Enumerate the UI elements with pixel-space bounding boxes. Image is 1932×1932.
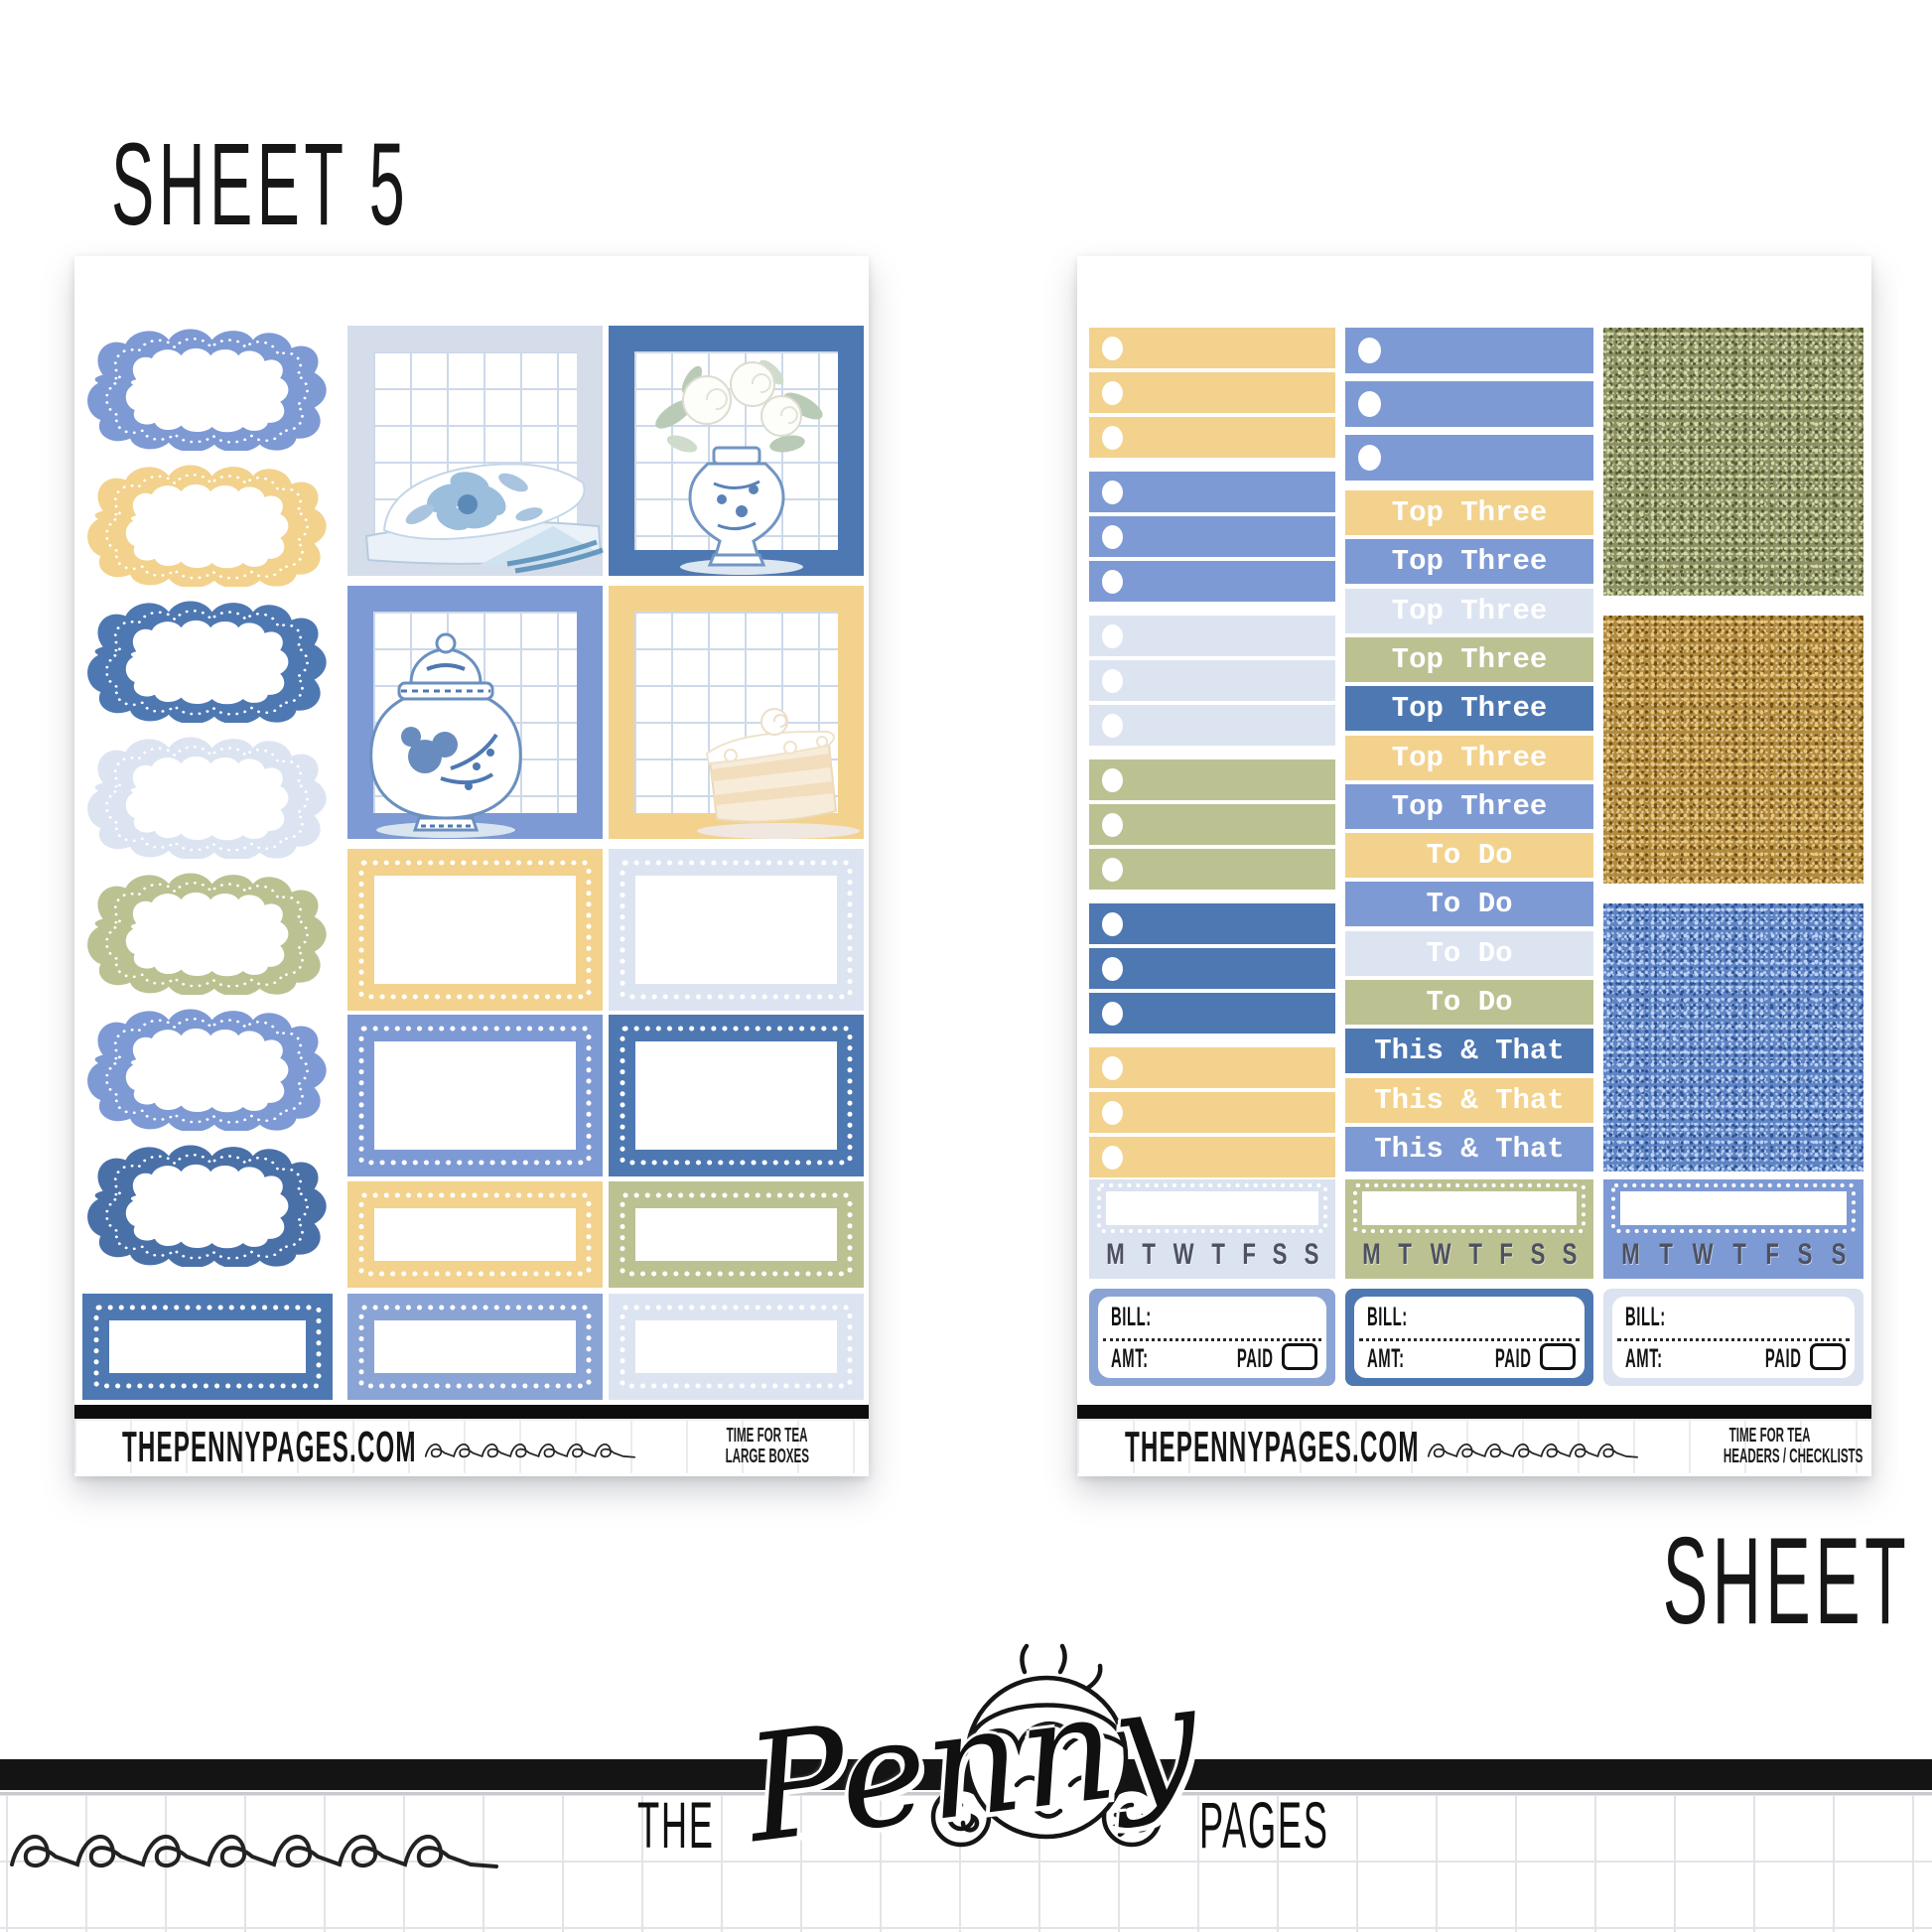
bill-tracker-sticker: BILL: AMT: PAID: [1089, 1289, 1335, 1386]
tracker-label-box: [1106, 1191, 1318, 1225]
paid-label: PAID: [1237, 1343, 1274, 1374]
bullet-circle-icon: [1358, 338, 1381, 363]
header-label: Top Three: [1392, 790, 1548, 823]
checklist-strip-sticker: [1089, 472, 1335, 512]
habit-tracker-sticker: MTWTFSS: [1345, 1179, 1593, 1279]
gold-glitter-swatch: [1603, 616, 1863, 884]
bullet-circle-icon: [1102, 570, 1123, 594]
day-letter: S: [1273, 1238, 1288, 1272]
sheet5-title: SHEET 5: [111, 117, 653, 252]
checklist-strip-sticker: [1089, 516, 1335, 557]
bullet-circle-icon: [1358, 445, 1381, 471]
checklist-strip-sticker: [1089, 417, 1335, 458]
dotted-divider: [1359, 1338, 1580, 1341]
header-label: This & That: [1374, 1084, 1564, 1117]
dotted-box-sticker: [609, 849, 864, 1011]
tracker-label-box: [1362, 1191, 1577, 1225]
cake-slice-illustration: [679, 692, 868, 841]
cloud-label-sticker: [82, 872, 333, 995]
dotted-box-sticker: [347, 849, 603, 1011]
bullet-circle-icon: [1102, 525, 1123, 549]
kit-name: TIME FOR TEA: [727, 1426, 808, 1447]
day-letter: S: [1562, 1238, 1577, 1272]
header-label: This & That: [1374, 1035, 1564, 1067]
checklist-strip-sticker: [1089, 804, 1335, 845]
dotted-box-sticker: [82, 1294, 333, 1400]
dotted-box-sticker: [609, 1181, 864, 1288]
cloud-label-sticker: [82, 1144, 333, 1267]
bullet-circle-icon: [1102, 858, 1123, 882]
bullet-strip-sticker: [1345, 328, 1593, 373]
bullet-circle-icon: [1102, 481, 1123, 504]
grid-box-sticker: [609, 586, 864, 839]
logo-pages: PAGES: [1199, 1787, 1436, 1863]
header-sticker: To Do: [1345, 980, 1593, 1025]
sheet-type: LARGE BOXES: [726, 1447, 809, 1467]
bullet-circle-icon: [1102, 714, 1123, 738]
header-label: Top Three: [1392, 643, 1548, 676]
header-label: Top Three: [1392, 595, 1548, 627]
header-sticker: Top Three: [1345, 686, 1593, 731]
day-letter: T: [1469, 1238, 1483, 1272]
dotted-box-sticker: [347, 1294, 603, 1400]
bullet-circle-icon: [1102, 624, 1123, 648]
bullet-circle-icon: [1102, 669, 1123, 693]
checklist-strip-sticker: [1089, 705, 1335, 746]
dotted-box-sticker: [609, 1015, 864, 1176]
sticker-sheet-6: Top Three Top Three Top Three Top Three …: [1077, 256, 1871, 1476]
header-sticker: Top Three: [1345, 637, 1593, 682]
day-letter: S: [1305, 1238, 1319, 1272]
day-letter: M: [1362, 1238, 1381, 1272]
dotted-divider: [1617, 1338, 1850, 1341]
page: SHEET 5 SHEET 6: [0, 0, 1932, 1932]
ginger-jar-illustration: [342, 618, 555, 841]
checklist-strip-sticker: [1089, 616, 1335, 656]
sheet5-title-text: SHEET 5: [111, 117, 409, 252]
bill-tracker-sticker: BILL: AMT: PAID: [1345, 1289, 1593, 1386]
day-letter: M: [1106, 1238, 1125, 1272]
bullet-circle-icon: [1102, 426, 1123, 450]
bullet-circle-icon: [1102, 1146, 1123, 1170]
paid-checkbox: [1810, 1343, 1846, 1370]
bullet-circle-icon: [1358, 391, 1381, 417]
bill-label: BILL:: [1111, 1302, 1152, 1332]
header-label: To Do: [1426, 986, 1512, 1019]
header-label: Top Three: [1392, 742, 1548, 774]
header-sticker: To Do: [1345, 931, 1593, 976]
sheet6-title: SHEET 6: [1408, 1511, 1874, 1652]
header-sticker: To Do: [1345, 833, 1593, 878]
bullet-strip-sticker: [1345, 381, 1593, 427]
header-label: This & That: [1374, 1133, 1564, 1166]
sheet6-footer: THEPENNYPAGES.COM TIME FOR TEA HEADERS /…: [1077, 1419, 1871, 1473]
cloud-label-sticker: [82, 464, 333, 587]
bullet-circle-icon: [1102, 1056, 1123, 1080]
header-sticker: Top Three: [1345, 539, 1593, 584]
bullet-circle-icon: [1102, 1101, 1123, 1125]
sticker-sheet-5: THEPENNYPAGES.COM TIME FOR TEA LARGE BOX…: [74, 256, 869, 1476]
checklist-strip-sticker: [1089, 328, 1335, 368]
paid-label: PAID: [1495, 1343, 1532, 1374]
checklist-strip-sticker: [1089, 948, 1335, 989]
bullet-circle-icon: [1102, 337, 1123, 360]
bullet-circle-icon: [1102, 813, 1123, 837]
header-label: Top Three: [1392, 496, 1548, 529]
day-letter: F: [1242, 1238, 1256, 1272]
dotted-box-sticker: [347, 1181, 603, 1288]
checklist-strip-sticker: [1089, 561, 1335, 602]
paid-label: PAID: [1765, 1343, 1802, 1374]
paid-checkbox: [1540, 1343, 1576, 1370]
header-sticker: To Do: [1345, 882, 1593, 926]
header-sticker: Top Three: [1345, 490, 1593, 535]
checklist-strip-sticker: [1089, 849, 1335, 890]
day-letter: T: [1399, 1238, 1413, 1272]
day-letter: S: [1798, 1238, 1813, 1272]
green-glitter-swatch: [1603, 328, 1863, 596]
header-label: To Do: [1426, 888, 1512, 920]
habit-tracker-sticker: MTWTFSS: [1603, 1179, 1863, 1279]
cloud-label-sticker: [82, 600, 333, 723]
day-letter: W: [1693, 1238, 1714, 1272]
sheet5-footer-label: TIME FOR TEA LARGE BOXES: [670, 1426, 865, 1467]
squiggle-doodle: [8, 1809, 584, 1888]
habit-tracker-sticker: MTWTFSS: [1089, 1179, 1335, 1279]
sheet6-footer-label: TIME FOR TEA HEADERS / CHECKLISTS: [1673, 1426, 1867, 1467]
tracker-label-box: [1620, 1191, 1847, 1225]
bullet-circle-icon: [1102, 381, 1123, 405]
day-letter: S: [1832, 1238, 1847, 1272]
checklist-strip-sticker: [1089, 903, 1335, 944]
day-letter: T: [1142, 1238, 1156, 1272]
cloud-label-sticker: [82, 328, 333, 451]
bullet-circle-icon: [1102, 957, 1123, 981]
sheet5-footer: THEPENNYPAGES.COM TIME FOR TEA LARGE BOX…: [74, 1419, 869, 1473]
checklist-strip-sticker: [1089, 759, 1335, 800]
header-sticker: Top Three: [1345, 736, 1593, 780]
header-sticker: This & That: [1345, 1078, 1593, 1123]
checklist-strip-sticker: [1089, 660, 1335, 701]
paid-checkbox: [1282, 1343, 1317, 1370]
sheet5-divider-bar: [74, 1405, 869, 1419]
bill-label: BILL:: [1625, 1302, 1666, 1332]
napkins-illustration: [358, 419, 607, 578]
day-letter: F: [1499, 1238, 1513, 1272]
day-letter: F: [1765, 1238, 1779, 1272]
site-url-text: THEPENNYPAGES.COM: [122, 1423, 417, 1472]
dotted-box-sticker: [347, 1015, 603, 1176]
dotted-divider: [1103, 1338, 1321, 1341]
amt-label: AMT:: [1367, 1343, 1405, 1374]
vase-of-roses-illustration: [622, 345, 851, 578]
checklist-strip-sticker: [1089, 1137, 1335, 1177]
bill-label: BILL:: [1367, 1302, 1408, 1332]
day-letter: S: [1530, 1238, 1545, 1272]
header-label: To Do: [1426, 839, 1512, 872]
day-letter: W: [1431, 1238, 1451, 1272]
header-sticker: Top Three: [1345, 784, 1593, 829]
header-sticker: Top Three: [1345, 589, 1593, 633]
bill-tracker-sticker: BILL: AMT: PAID: [1603, 1289, 1863, 1386]
kit-name: TIME FOR TEA: [1729, 1426, 1811, 1447]
amt-label: AMT:: [1111, 1343, 1149, 1374]
grid-box-sticker: [609, 326, 864, 576]
sheet6-title-text: SHEET 6: [1663, 1511, 1932, 1652]
bullet-circle-icon: [1102, 768, 1123, 792]
checklist-strip-sticker: [1089, 1047, 1335, 1088]
day-letter: T: [1733, 1238, 1747, 1272]
bullet-circle-icon: [1102, 1002, 1123, 1026]
amt-label: AMT:: [1625, 1343, 1663, 1374]
dotted-box-sticker: [609, 1294, 864, 1400]
bullet-strip-sticker: [1345, 435, 1593, 481]
sheet-type: HEADERS / CHECKLISTS: [1724, 1447, 1863, 1467]
squiggle-doodle: [1427, 1431, 1675, 1468]
header-sticker: This & That: [1345, 1127, 1593, 1172]
grid-box-sticker: [347, 586, 603, 839]
checklist-strip-sticker: [1089, 1092, 1335, 1133]
cloud-label-sticker: [82, 736, 333, 859]
header-label: To Do: [1426, 937, 1512, 970]
checklist-strip-sticker: [1089, 372, 1335, 413]
grid-box-sticker: [347, 326, 603, 576]
site-url-text: THEPENNYPAGES.COM: [1125, 1423, 1420, 1472]
header-label: Top Three: [1392, 692, 1548, 725]
blue-glitter-swatch: [1603, 903, 1863, 1172]
header-sticker: This & That: [1345, 1029, 1593, 1073]
sheet6-divider-bar: [1077, 1405, 1871, 1419]
squiggle-doodle: [424, 1431, 672, 1468]
checklist-strip-sticker: [1089, 993, 1335, 1034]
day-letter: T: [1659, 1238, 1673, 1272]
day-letter: T: [1212, 1238, 1226, 1272]
header-label: Top Three: [1392, 545, 1548, 578]
day-letter: W: [1173, 1238, 1194, 1272]
day-letter: M: [1621, 1238, 1640, 1272]
cloud-label-sticker: [82, 1008, 333, 1131]
bullet-circle-icon: [1102, 912, 1123, 936]
